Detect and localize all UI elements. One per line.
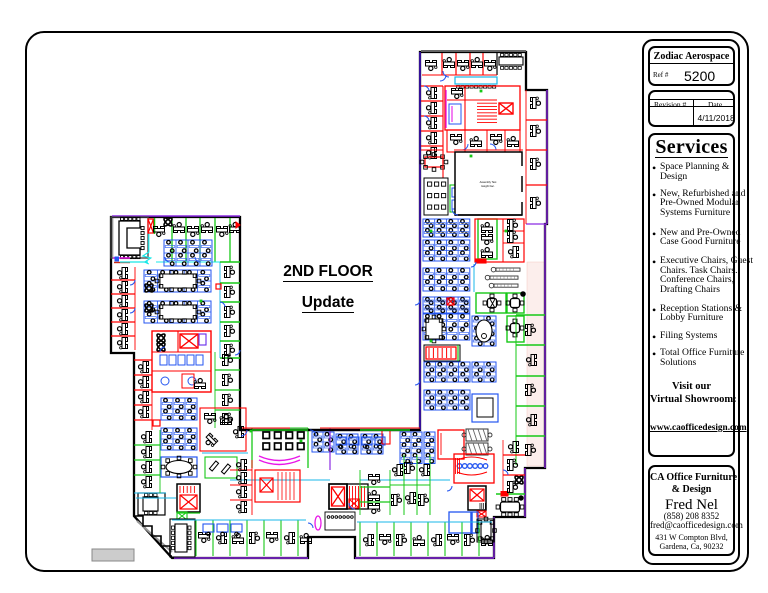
svg-text:Assembly Test: Assembly Test (480, 180, 497, 184)
svg-text:Height Fac.: Height Fac. (481, 184, 495, 188)
